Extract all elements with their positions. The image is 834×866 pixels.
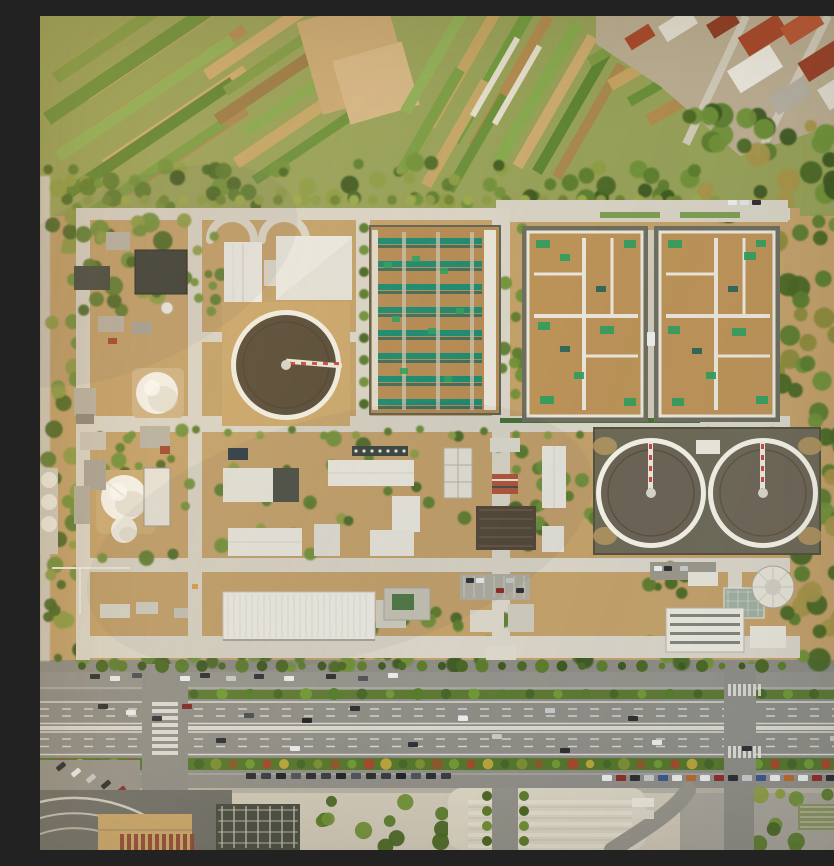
- clarifiers-6: [281, 360, 291, 370]
- median-shrub-17: [330, 759, 340, 769]
- parked-car-10: [742, 775, 752, 781]
- zebra-stripe-7: [152, 751, 178, 755]
- parked-car-6: [686, 775, 696, 781]
- median-tree-2: [809, 689, 819, 699]
- aeration-lane-dark-6: [378, 383, 482, 386]
- forest-east-4: [800, 356, 816, 372]
- clarifiers-1: [761, 455, 764, 460]
- tree-3: [355, 822, 372, 839]
- tree-6: [115, 443, 125, 453]
- forest-east-14: [799, 334, 816, 351]
- red-roof-stripe-3: [141, 834, 145, 850]
- car: [284, 676, 294, 681]
- median-shrub-12: [245, 759, 254, 768]
- tree-2: [676, 587, 688, 599]
- car: [302, 718, 312, 723]
- parked-car-13: [784, 775, 794, 781]
- structures-39: [560, 346, 570, 352]
- structures-17: [440, 268, 448, 274]
- structures-48: [668, 240, 682, 248]
- basin-edge-tree-4: [359, 311, 369, 321]
- roadside-tree-2: [482, 821, 492, 831]
- tree-band-59: [562, 174, 579, 191]
- fence-tree-30: [678, 662, 685, 669]
- fence-tree-2: [116, 660, 127, 671]
- forest-southeast-39: [794, 566, 810, 582]
- tree-band-48: [279, 167, 289, 177]
- fence-tree-14: [357, 661, 367, 671]
- avenue-tree-16: [387, 195, 397, 205]
- median-shrub-34: [618, 758, 630, 770]
- zebra-stripe-6: [758, 746, 761, 758]
- aeration-lane-dark-5: [378, 360, 482, 363]
- roadside-tree-1: [128, 431, 136, 439]
- avenue-tree-20: [463, 195, 473, 205]
- roadside-tree-3: [519, 836, 529, 846]
- parked-car-5: [321, 773, 331, 779]
- tree-0: [435, 807, 448, 820]
- forest-north-34: [754, 119, 774, 139]
- clarifiers-1: [649, 455, 652, 460]
- forest-east-33: [815, 270, 832, 287]
- median-shrub-18: [347, 759, 356, 768]
- clarifiers-2: [761, 466, 764, 471]
- clarifiers-0: [649, 444, 652, 449]
- zebra-stripe-3: [743, 684, 746, 696]
- aerial-photo-wastewater-plant: [40, 16, 834, 850]
- fence-tree-1: [96, 660, 108, 672]
- forest-east-1: [812, 215, 825, 228]
- car: [728, 200, 737, 205]
- clarifiers-1: [301, 362, 306, 365]
- forest-east-27: [780, 325, 801, 346]
- tree-band-38: [493, 160, 504, 171]
- red-roof-stripe-6: [162, 834, 166, 850]
- structures-36: [540, 396, 554, 404]
- clarifiers-3: [761, 477, 764, 482]
- car: [545, 708, 555, 713]
- west-trees-3: [54, 654, 62, 662]
- west-trees-4: [69, 541, 77, 549]
- parked-car-12: [770, 775, 780, 781]
- south-access-road: [492, 788, 518, 850]
- structures-30: [536, 240, 550, 248]
- roadside-tree-3: [192, 426, 200, 434]
- forest-north-22: [754, 185, 768, 199]
- forest-southeast-15: [807, 648, 831, 672]
- tree-9: [389, 830, 405, 846]
- fence-tree-28: [636, 660, 648, 672]
- structures-15: [384, 262, 392, 268]
- zebra-stripe-1: [152, 709, 178, 713]
- car: [350, 706, 360, 711]
- car: [664, 566, 672, 571]
- forest-east-30: [813, 231, 828, 246]
- basin-edge-tree-8: [359, 399, 369, 409]
- fence-tree-0: [78, 662, 86, 670]
- structures-61: [144, 380, 160, 396]
- scene-svg: [40, 16, 834, 850]
- car: [740, 200, 749, 205]
- median-tree-12: [525, 689, 534, 698]
- avenue-tree-15: [368, 195, 378, 205]
- fence-tree-23: [535, 659, 549, 673]
- clarifiers-3: [649, 477, 652, 482]
- median-tree-16: [637, 689, 646, 698]
- clarifiers-4: [334, 362, 339, 365]
- car: [98, 704, 108, 709]
- tree-14: [175, 424, 188, 437]
- forest-north-30: [805, 120, 817, 132]
- parked-car-8: [366, 773, 376, 779]
- bottom-strip-18: [632, 798, 654, 807]
- forest-north-31: [780, 128, 797, 145]
- median-shrub-27: [500, 759, 509, 768]
- zebra-stripe-2: [738, 684, 741, 696]
- median-shrub-10: [210, 758, 221, 769]
- tree-1: [326, 796, 337, 807]
- structures-38: [596, 286, 606, 292]
- median-shrub-11: [229, 760, 238, 769]
- car: [458, 716, 468, 721]
- tree-12: [167, 455, 175, 463]
- west-trees-11: [45, 420, 63, 438]
- fence-tree-16: [398, 662, 406, 670]
- parked-car-6: [336, 773, 346, 779]
- forest-north-29: [737, 139, 752, 154]
- aeration-lane-dark-4: [378, 337, 482, 340]
- tree-band-55: [449, 174, 461, 186]
- median-shrub-25: [467, 760, 476, 769]
- car: [200, 673, 210, 678]
- south-gate: [486, 646, 516, 660]
- structures-37: [574, 372, 584, 379]
- car: [680, 566, 688, 571]
- clarifiers-2: [649, 466, 652, 471]
- car: [358, 676, 368, 681]
- car: [180, 676, 190, 681]
- structures-21: [400, 368, 408, 374]
- fence-tree-27: [618, 662, 626, 670]
- aeration-lane-dark-1: [378, 268, 482, 271]
- zebra-stripe-6: [152, 744, 178, 748]
- median-shrub-38: [687, 759, 698, 770]
- structures-81: [140, 426, 170, 448]
- structures-16: [412, 256, 420, 262]
- west-tank: [41, 472, 57, 488]
- red-roof-stripe-7: [169, 834, 173, 850]
- median-shrub-3: [804, 759, 814, 769]
- clarifiers-22: [646, 488, 656, 498]
- tree-band-57: [403, 172, 415, 184]
- tree-band-68: [424, 156, 438, 170]
- tree-band-41: [94, 179, 104, 189]
- west-trees-40: [68, 164, 79, 175]
- fence-tree-18: [438, 662, 446, 670]
- clarifiers-23: [758, 488, 768, 498]
- fence-tree-25: [578, 662, 586, 670]
- zebra-stripe-4: [748, 684, 751, 696]
- roadside-tree-0: [519, 791, 529, 801]
- west-trees-8: [59, 613, 74, 628]
- forest-east-23: [788, 383, 803, 398]
- west-trees-21: [57, 580, 66, 589]
- tree-11: [384, 815, 396, 827]
- structures-18: [392, 316, 400, 322]
- median-tree-7: [386, 690, 395, 699]
- tree-band-12: [483, 178, 497, 192]
- structures-52: [732, 328, 746, 336]
- tree-7: [510, 389, 520, 399]
- structures-79: [80, 432, 106, 450]
- median-shrub-30: [552, 760, 561, 769]
- median-shrub-13: [262, 759, 271, 768]
- fence-tree-20: [476, 660, 489, 673]
- structures-32: [624, 240, 636, 248]
- fence-tree-3: [138, 662, 147, 671]
- fence-tree-24: [557, 661, 568, 672]
- car: [830, 736, 834, 741]
- structures-22: [444, 376, 452, 382]
- forest-north-21: [709, 135, 727, 153]
- median-north: [756, 690, 834, 699]
- fence-tree-15: [378, 662, 386, 670]
- structures-31: [560, 254, 570, 261]
- median-tree-2: [245, 689, 256, 700]
- red-roof-stripe-8: [176, 834, 180, 850]
- avenue-tree-18: [425, 195, 435, 205]
- aeration-walkway-0: [402, 232, 406, 410]
- aeration-lane-2: [378, 284, 482, 290]
- median-tree-15: [610, 690, 619, 699]
- median-shrub-32: [586, 760, 594, 768]
- car: [560, 748, 570, 753]
- tree-10: [322, 813, 335, 826]
- tree-band-64: [658, 180, 670, 192]
- forest-north-33: [800, 161, 823, 184]
- tree-11: [788, 833, 805, 850]
- car: [516, 588, 524, 593]
- red-roof-stripe-5: [155, 834, 159, 850]
- forest-southeast-38: [780, 606, 795, 621]
- aeration-lane-3: [378, 307, 482, 313]
- structures-54: [672, 398, 684, 406]
- structures-144: [765, 579, 781, 595]
- structures-83: [74, 486, 90, 524]
- parked-car-0: [246, 773, 256, 779]
- avenue-tree-14: [349, 195, 359, 205]
- aeration-lane-0: [378, 238, 482, 244]
- car: [182, 704, 192, 709]
- red-roof-stripe-10: [190, 834, 194, 850]
- car: [216, 738, 226, 743]
- structures-10: [484, 230, 496, 410]
- tree-band-58: [353, 159, 363, 169]
- median-tree-11: [498, 690, 507, 699]
- parked-car-11: [411, 773, 421, 779]
- median-shrub-21: [399, 760, 408, 769]
- red-roof-stripe-0: [120, 834, 124, 850]
- clarifiers-3: [323, 362, 328, 365]
- truck: [647, 332, 655, 346]
- roadside-tree-0: [482, 791, 492, 801]
- lawn-strip: [680, 212, 740, 218]
- parked-car-16: [826, 775, 834, 781]
- parked-car-8: [714, 775, 724, 781]
- structures-51: [668, 326, 680, 334]
- parked-car-0: [602, 775, 612, 781]
- median-shrub-20: [380, 758, 391, 769]
- median-shrub-4: [821, 759, 831, 769]
- fence-tree-26: [596, 660, 607, 671]
- forest-southeast-33: [801, 581, 822, 602]
- car: [408, 742, 418, 747]
- parked-car-2: [630, 775, 640, 781]
- median-tree-13: [553, 689, 562, 698]
- median-tree-14: [581, 689, 591, 699]
- forest-north-17: [698, 183, 714, 199]
- parked-car-7: [700, 775, 710, 781]
- parked-car-4: [306, 773, 316, 779]
- structures-34: [600, 326, 614, 334]
- west-trees-35: [49, 179, 67, 197]
- zebra-stripe-5: [753, 746, 756, 758]
- parked-car-4: [658, 775, 668, 781]
- roadside-tree-4: [224, 429, 232, 437]
- car: [132, 673, 142, 678]
- forest-east-9: [812, 371, 831, 390]
- avenue-tree-17: [406, 195, 416, 205]
- parked-car-14: [798, 775, 808, 781]
- forest-east-29: [808, 413, 823, 428]
- zebra-stripe-0: [152, 702, 178, 706]
- basin-edge-tree-2: [359, 267, 369, 277]
- car: [110, 676, 120, 681]
- forest-north-38: [736, 108, 756, 128]
- west-tank: [41, 516, 57, 532]
- tree-5: [397, 794, 413, 810]
- median-shrub-37: [670, 759, 679, 768]
- forest-east-10: [814, 307, 834, 328]
- aeration-lane-dark-0: [378, 245, 482, 248]
- median-shrub-23: [431, 758, 443, 770]
- median-shrub-31: [567, 758, 578, 769]
- parked-car-10: [396, 773, 406, 779]
- roadside-tree-2: [519, 821, 529, 831]
- aeration-walkway-2: [470, 232, 474, 410]
- tree-band-67: [578, 168, 594, 184]
- median-shrub-24: [449, 759, 459, 769]
- basin-edge-tree-7: [359, 377, 369, 387]
- structures-33: [538, 322, 550, 330]
- clarifiers-2: [312, 362, 317, 365]
- zebra-stripe-5: [152, 737, 178, 741]
- tree-6: [509, 357, 520, 368]
- basin-edge-tree-3: [359, 289, 369, 299]
- west-trees-7: [40, 451, 56, 467]
- car: [628, 716, 638, 721]
- zebra-stripe-0: [728, 684, 731, 696]
- zebra-stripe-1: [733, 684, 736, 696]
- parked-car-2: [276, 773, 286, 779]
- median-shrub-36: [654, 760, 663, 769]
- parked-car-3: [291, 773, 301, 779]
- median-shrub-26: [483, 759, 494, 770]
- zebra-stripe-5: [753, 684, 756, 696]
- west-trees-22: [45, 569, 56, 580]
- median-shrub-1: [770, 759, 780, 769]
- structures-78: [76, 414, 94, 424]
- avenue-tree-12: [311, 195, 321, 205]
- aeration-lane-1: [378, 261, 482, 267]
- structures-56: [728, 286, 738, 292]
- aeration-walkway-1: [436, 232, 440, 410]
- median-tree-6: [357, 689, 368, 700]
- window-strip-3: [670, 641, 740, 644]
- median-shrub-19: [364, 759, 375, 770]
- car: [388, 673, 398, 678]
- basin-edge-tree-6: [359, 355, 369, 365]
- window-strip-0: [670, 614, 740, 617]
- car: [126, 710, 136, 715]
- basin-edge-tree-0: [359, 223, 369, 233]
- avenue-tree-13: [330, 195, 340, 205]
- car: [226, 676, 236, 681]
- clarifiers-9: [798, 437, 822, 455]
- parked-car-7: [351, 773, 361, 779]
- parked-car-12: [426, 773, 436, 779]
- fence-tree-35: [778, 662, 786, 670]
- car: [254, 674, 264, 679]
- car: [326, 674, 336, 679]
- basin-edge-tree-5: [359, 333, 369, 343]
- median-shrub-16: [313, 759, 322, 768]
- zebra-stripe-6: [758, 684, 761, 696]
- structures-77: [74, 388, 96, 416]
- roadside-tree-3: [482, 836, 492, 846]
- parked-car-11: [756, 775, 766, 781]
- tree-11: [511, 312, 521, 322]
- car: [492, 734, 502, 739]
- median-shrub-39: [704, 759, 714, 769]
- forest-north-16: [682, 110, 696, 124]
- structures-35: [624, 398, 636, 406]
- forest-north-36: [776, 169, 800, 193]
- tree-8: [111, 453, 127, 469]
- forest-north-41: [700, 107, 718, 125]
- pump-house: [696, 440, 720, 454]
- forest-east-15: [792, 225, 808, 241]
- tree-band-28: [406, 153, 425, 172]
- parked-car-9: [728, 775, 738, 781]
- car: [244, 713, 254, 718]
- west-trees-34: [43, 165, 53, 175]
- median-tree-17: [665, 689, 675, 699]
- highway: [40, 659, 834, 808]
- car: [742, 746, 752, 751]
- zebra-stripe-3: [152, 723, 178, 727]
- fence-tree-22: [517, 661, 527, 671]
- median-shrub-14: [279, 759, 289, 769]
- forest-east-24: [777, 273, 800, 296]
- median-tree-10: [468, 688, 479, 699]
- forest-north-6: [688, 164, 701, 177]
- structures-50: [756, 240, 766, 247]
- car: [290, 746, 300, 751]
- fence-tree-31: [696, 660, 708, 672]
- car: [90, 674, 100, 679]
- zebra-stripe-1: [733, 746, 736, 758]
